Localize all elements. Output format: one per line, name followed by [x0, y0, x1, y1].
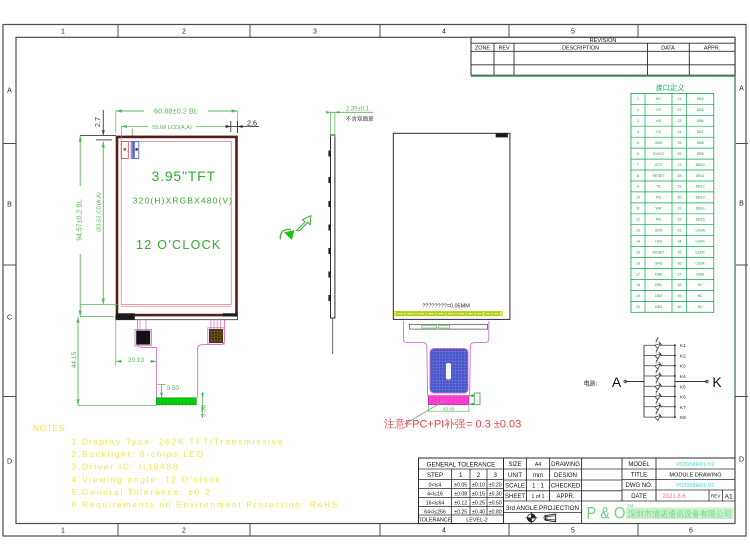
svg-text:35: 35 — [677, 250, 681, 254]
svg-text:20.13: 20.13 — [128, 357, 144, 364]
svg-text:B: B — [739, 201, 744, 208]
svg-text:K5: K5 — [680, 384, 686, 389]
svg-text:HS: HS — [656, 119, 662, 123]
svg-text:10: 10 — [636, 196, 640, 200]
svg-text:±0.20: ±0.20 — [489, 482, 502, 488]
svg-text:NOTES:: NOTES: — [33, 423, 68, 433]
svg-text:3rd ANGLE PROJECTION: 3rd ANGLE PROJECTION — [506, 505, 579, 512]
svg-text:2.Backlight: 6-chips LED: 2.Backlight: 6-chips LED — [72, 449, 205, 459]
svg-text:DRAWING: DRAWING — [551, 462, 580, 468]
svg-text:DB2: DB2 — [655, 294, 662, 298]
svg-text:27: 27 — [677, 163, 681, 167]
svg-text:GENERAL TOLERANCE: GENERAL TOLERANCE — [427, 462, 496, 469]
svg-text:CS: CS — [656, 130, 662, 134]
svg-text:11: 11 — [636, 207, 640, 211]
svg-text:LEDK: LEDK — [696, 250, 706, 254]
svg-text:VCC: VCC — [655, 163, 663, 167]
svg-text:DB15: DB15 — [696, 218, 705, 222]
svg-text:33: 33 — [677, 229, 681, 233]
svg-text:12 O'CLOCK: 12 O'CLOCK — [136, 238, 222, 252]
svg-text:21: 21 — [677, 97, 681, 101]
svg-text:60.88±0.2 BL: 60.88±0.2 BL — [154, 107, 198, 116]
svg-text:2.35±0.1: 2.35±0.1 — [346, 105, 369, 112]
svg-text:UNIT: UNIT — [508, 473, 522, 479]
svg-text:±0.05: ±0.05 — [454, 482, 467, 488]
svg-text:7: 7 — [637, 163, 639, 167]
svg-text:3.95"TFT: 3.95"TFT — [152, 168, 216, 184]
svg-text:14: 14 — [636, 240, 640, 244]
svg-text:LEDA: LEDA — [696, 229, 706, 233]
svg-text:16<l≤64: 16<l≤64 — [426, 500, 445, 506]
svg-text:1: 1 — [637, 97, 639, 101]
svg-text:16: 16 — [636, 261, 640, 265]
svg-text:5: 5 — [571, 528, 575, 535]
svg-text:1 of 1: 1 of 1 — [532, 494, 545, 500]
svg-text:4<l≤16: 4<l≤16 — [427, 491, 443, 497]
svg-text:LEDK: LEDK — [696, 261, 706, 265]
svg-text:K1: K1 — [680, 343, 686, 348]
svg-text:K: K — [712, 374, 722, 390]
svg-text:CHECKED: CHECKED — [551, 484, 581, 490]
svg-text:±0.30: ±0.30 — [489, 491, 502, 497]
svg-text:RD: RD — [656, 218, 662, 222]
svg-text:SCALE: SCALE — [505, 484, 525, 490]
svg-text:5: 5 — [637, 141, 639, 145]
svg-text:DB7: DB7 — [697, 130, 704, 134]
svg-text:DB14: DB14 — [696, 207, 705, 211]
svg-text:3: 3 — [637, 119, 639, 123]
svg-text:±0.15: ±0.15 — [472, 491, 485, 497]
svg-text:K6: K6 — [680, 395, 686, 400]
svg-text:MODEL: MODEL — [628, 462, 650, 468]
svg-text:TITLE: TITLE — [631, 473, 647, 479]
svg-text:12: 12 — [636, 218, 640, 222]
svg-text:P & O: P & O — [587, 504, 626, 523]
svg-text:±0.12: ±0.12 — [454, 500, 467, 506]
svg-text:DESCRIPTION: DESCRIPTION — [562, 46, 599, 52]
svg-text:±0.10: ±0.10 — [472, 482, 485, 488]
svg-text:= 0.3 ±0.03: = 0.3 ±0.03 — [466, 419, 521, 431]
svg-text:mm: mm — [533, 473, 543, 479]
svg-text:WR: WR — [656, 207, 662, 211]
svg-text:SHEET: SHEET — [505, 494, 525, 500]
svg-text:26: 26 — [677, 152, 681, 156]
svg-text:64<l≤256: 64<l≤256 — [424, 509, 446, 515]
svg-text:1 : 1: 1 : 1 — [532, 484, 544, 490]
svg-text:94.57±0.2 BL: 94.57±0.2 BL — [77, 199, 84, 241]
svg-text:DATE: DATE — [631, 494, 647, 500]
svg-text:18: 18 — [636, 283, 640, 287]
svg-text:ZONE: ZONE — [475, 46, 490, 52]
svg-text:0.50: 0.50 — [167, 385, 180, 392]
svg-text:A1: A1 — [725, 493, 733, 500]
svg-text:2: 2 — [477, 472, 481, 479]
svg-text:DB13: DB13 — [696, 196, 705, 200]
svg-text:GND: GND — [655, 261, 663, 265]
svg-text:DB5: DB5 — [697, 108, 704, 112]
svg-text:4.Viewing angle: 12 O'clock: 4.Viewing angle: 12 O'clock — [72, 474, 222, 484]
svg-text:P03958H01-V2: P03958H01-V2 — [676, 462, 714, 468]
svg-text:D: D — [739, 457, 744, 464]
svg-text:±0.25: ±0.25 — [472, 500, 485, 506]
svg-text:SIZE: SIZE — [508, 462, 521, 468]
svg-text:A: A — [612, 374, 622, 390]
svg-text:38: 38 — [677, 283, 681, 287]
svg-text:36: 36 — [677, 261, 681, 265]
svg-text:37: 37 — [677, 272, 681, 276]
svg-text:DB6: DB6 — [697, 119, 704, 123]
svg-text:LDO: LDO — [655, 240, 663, 244]
svg-text:P03958H01-V2: P03958H01-V2 — [676, 483, 714, 489]
svg-text:2: 2 — [637, 108, 639, 112]
svg-text:K7: K7 — [680, 405, 686, 410]
svg-text:55.68 LCD(A,A): 55.68 LCD(A,A) — [152, 125, 192, 131]
svg-text:2: 2 — [182, 29, 186, 36]
svg-text:SDA: SDA — [655, 229, 663, 233]
svg-text:MODULE DRAWING: MODULE DRAWING — [669, 473, 721, 479]
svg-text:5.General Tolerance: ±0.2: 5.General Tolerance: ±0.2 — [72, 487, 212, 497]
svg-text:8: 8 — [637, 174, 639, 178]
svg-text:2,6: 2,6 — [247, 119, 257, 128]
svg-text:30: 30 — [677, 196, 681, 200]
svg-text:5: 5 — [571, 29, 575, 36]
svg-text:4: 4 — [442, 528, 446, 535]
svg-text:DB11: DB11 — [696, 174, 705, 178]
svg-text:±0.80: ±0.80 — [489, 509, 502, 515]
svg-text:STEP: STEP — [427, 472, 443, 479]
svg-text:GND: GND — [696, 272, 704, 276]
svg-text:IOVCC: IOVCC — [653, 152, 665, 156]
svg-text:DESIGN: DESIGN — [554, 473, 577, 479]
svg-text:A: A — [7, 88, 12, 95]
svg-text:LEDK: LEDK — [696, 240, 706, 244]
svg-text:28: 28 — [677, 174, 681, 178]
svg-text:LEVEL-2: LEVEL-2 — [466, 518, 488, 524]
svg-text:APPR.: APPR. — [704, 46, 720, 52]
svg-text:(83.52,CD(A,A): (83.52,CD(A,A) — [97, 192, 103, 232]
svg-text:25: 25 — [677, 141, 681, 145]
svg-text:APPR.: APPR. — [556, 494, 574, 500]
svg-text:DWG NO.: DWG NO. — [626, 483, 653, 489]
svg-text:32: 32 — [677, 218, 681, 222]
svg-text:6.Requirements on Environment: 6.Requirements on Environment Protection… — [72, 500, 340, 510]
svg-text:RESET: RESET — [653, 250, 666, 254]
svg-text:NC: NC — [698, 305, 704, 309]
svg-text:NC: NC — [698, 294, 704, 298]
svg-text:40: 40 — [677, 305, 681, 309]
svg-text:VS: VS — [656, 108, 661, 112]
svg-text:RS: RS — [656, 196, 662, 200]
svg-text:20: 20 — [636, 305, 640, 309]
svg-text:2: 2 — [182, 528, 186, 535]
svg-text:K8: K8 — [680, 415, 686, 420]
svg-text:31: 31 — [677, 207, 681, 211]
svg-text:320(H)XRGBX480(V): 320(H)XRGBX480(V) — [133, 195, 233, 205]
svg-text:6: 6 — [689, 528, 693, 535]
svg-text:K2: K2 — [680, 354, 686, 359]
svg-text:0<l≤4: 0<l≤4 — [429, 482, 442, 488]
svg-text:23: 23 — [677, 119, 681, 123]
svg-text:3: 3 — [493, 472, 497, 479]
svg-text:DATA: DATA — [661, 46, 675, 52]
svg-text:29: 29 — [677, 185, 681, 189]
svg-text:DB0: DB0 — [655, 272, 662, 276]
svg-text:1: 1 — [61, 528, 65, 535]
svg-text:DB12: DB12 — [696, 185, 705, 189]
svg-text:3.Driver IC: ILI9488: 3.Driver IC: ILI9488 — [72, 462, 180, 472]
svg-text:1.Display Type: 262K TFT/Trans: 1.Display Type: 262K TFT/Transmissive — [72, 437, 285, 447]
svg-text:RESET: RESET — [653, 174, 666, 178]
svg-text:TE: TE — [656, 185, 661, 189]
svg-text:1: 1 — [61, 29, 65, 36]
svg-text:4: 4 — [637, 130, 639, 134]
svg-text:NC: NC — [656, 97, 662, 101]
svg-text:6: 6 — [637, 152, 639, 156]
svg-text:DB3: DB3 — [655, 305, 662, 309]
svg-text:K3: K3 — [680, 364, 686, 369]
svg-text:3: 3 — [313, 29, 317, 36]
svg-text:24: 24 — [677, 130, 681, 134]
svg-text:±0.08: ±0.08 — [454, 491, 467, 497]
svg-text:REV: REV — [711, 494, 721, 499]
svg-text:2,7: 2,7 — [93, 117, 102, 127]
svg-text:TOLERANCE: TOLERANCE — [419, 518, 452, 524]
svg-text:1: 1 — [459, 472, 463, 479]
svg-text:REV: REV — [498, 46, 509, 52]
svg-text:A4: A4 — [535, 462, 541, 468]
svg-text:15: 15 — [636, 250, 640, 254]
svg-text:GND: GND — [655, 141, 663, 145]
svg-text:D: D — [7, 459, 12, 466]
svg-text:DB8: DB8 — [697, 141, 704, 145]
svg-text:????????=0.05MM: ????????=0.05MM — [422, 303, 470, 309]
svg-text:DB1: DB1 — [655, 283, 662, 287]
svg-text:REVISION: REVISION — [590, 38, 617, 44]
svg-text:17: 17 — [636, 272, 640, 276]
svg-text:DB4: DB4 — [697, 97, 704, 101]
svg-text:A: A — [739, 86, 744, 93]
svg-text:39: 39 — [677, 294, 681, 298]
svg-text:C: C — [7, 315, 12, 322]
svg-text:2021.8.6: 2021.8.6 — [662, 494, 686, 500]
svg-text:DB9: DB9 — [697, 152, 704, 156]
svg-text:±0.50: ±0.50 — [489, 500, 502, 506]
svg-text:9: 9 — [637, 185, 639, 189]
svg-text:43.48: 43.48 — [443, 407, 455, 412]
svg-text:22: 22 — [677, 108, 681, 112]
svg-text:13: 13 — [636, 229, 640, 233]
svg-text:B: B — [7, 202, 12, 209]
svg-text:4: 4 — [442, 29, 446, 36]
svg-text:19: 19 — [636, 294, 640, 298]
svg-text:NC: NC — [698, 283, 704, 287]
svg-text:FPC+PI: FPC+PI — [405, 419, 444, 431]
svg-text:K4: K4 — [680, 374, 686, 379]
svg-text:3.50: 3.50 — [201, 404, 208, 417]
svg-text:DB10: DB10 — [696, 163, 705, 167]
svg-text:44.15: 44.15 — [71, 351, 78, 368]
svg-text:±0.40: ±0.40 — [472, 509, 485, 515]
svg-text:34: 34 — [677, 240, 681, 244]
svg-text:±0.25: ±0.25 — [454, 509, 467, 515]
